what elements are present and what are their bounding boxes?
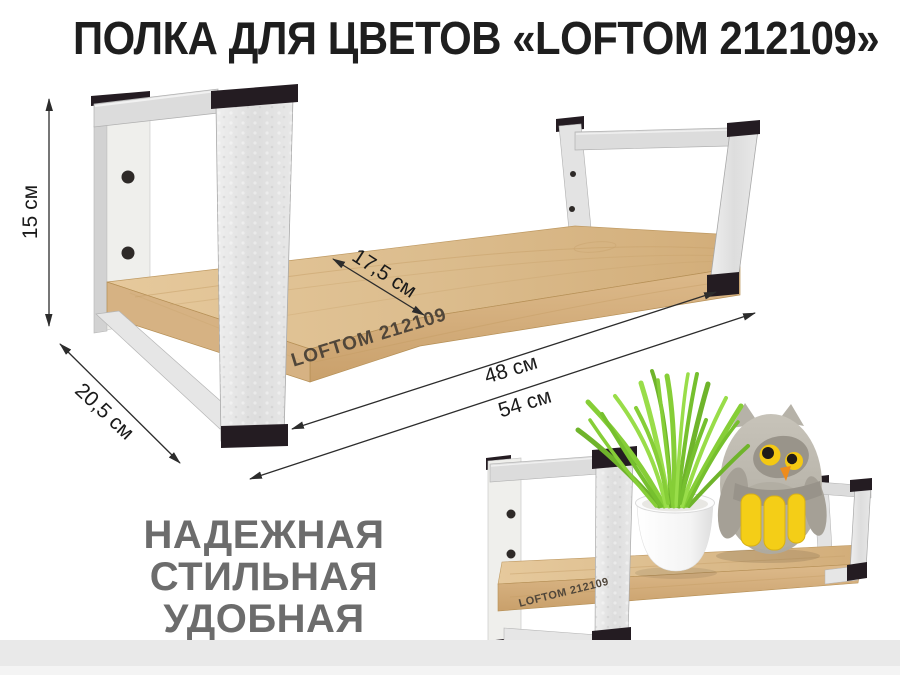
shelf-board	[107, 226, 740, 382]
feature-line: НАДЕЖНАЯ	[64, 514, 464, 556]
feature-line: СТИЛЬНАЯ	[64, 556, 464, 598]
front-post	[850, 484, 871, 572]
owl-feather-strip	[741, 494, 761, 546]
small-product-photo	[486, 371, 872, 658]
foot-cap	[847, 562, 867, 581]
wall-screw-hole	[507, 510, 516, 519]
owl-feather-strip	[764, 496, 785, 550]
bottom-shadow-band-fade	[0, 666, 900, 675]
page-title: ПОЛКА ДЛЯ ЦВЕТОВ «LOFTOM 212109»	[73, 11, 861, 65]
product-listing-image: ПОЛКА ДЛЯ ЦВЕТОВ «LOFTOM 212109» 15 см 2…	[0, 0, 900, 675]
front-post	[710, 130, 758, 283]
feature-list: НАДЕЖНАЯ СТИЛЬНАЯ УДОБНАЯ	[64, 514, 464, 640]
wall-screw-hole	[570, 171, 576, 177]
dimension-label-height: 15 см	[19, 185, 43, 239]
owl-pupil-left	[762, 447, 774, 459]
front-post-texture	[216, 97, 293, 441]
foot-cap	[221, 424, 288, 448]
wall-post-edge	[94, 124, 107, 333]
bottom-shadow-band	[0, 640, 900, 666]
wall-screw-hole	[569, 206, 575, 212]
wall-screw-hole	[507, 550, 516, 559]
end-cap	[850, 478, 872, 492]
feature-line: УДОБНАЯ	[64, 598, 464, 640]
small-left-bracket-rear	[486, 455, 599, 658]
wall-screw-hole	[122, 171, 135, 184]
front-post-texture	[595, 459, 633, 641]
owl-pupil-right	[787, 454, 797, 464]
owl-feather-strip	[788, 494, 805, 543]
wall-post	[488, 458, 521, 653]
end-cap	[727, 120, 760, 137]
wall-screw-hole	[122, 247, 135, 260]
